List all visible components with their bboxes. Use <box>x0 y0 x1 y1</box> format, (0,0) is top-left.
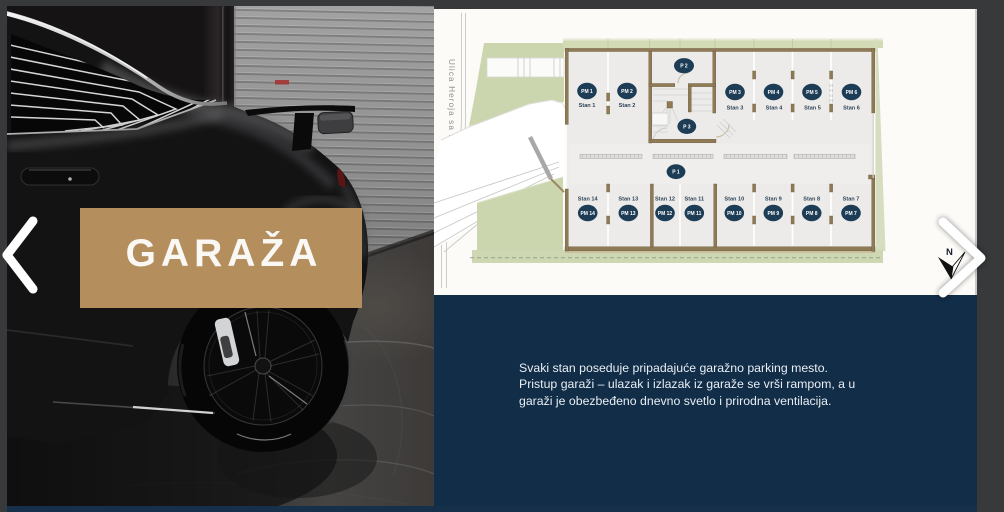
svg-text:PM 4: PM 4 <box>768 90 780 96</box>
svg-text:Stan 9: Stan 9 <box>765 197 782 203</box>
svg-text:PM 2: PM 2 <box>621 89 633 95</box>
svg-text:PM 8: PM 8 <box>806 211 818 217</box>
svg-text:Stan 5: Stan 5 <box>804 106 821 112</box>
svg-text:PM 14: PM 14 <box>580 211 595 217</box>
svg-text:Stan 8: Stan 8 <box>803 197 820 203</box>
svg-text:N: N <box>946 247 953 258</box>
svg-text:PM 5: PM 5 <box>806 90 818 96</box>
svg-text:PM 3: PM 3 <box>729 90 741 96</box>
svg-text:Stan 7: Stan 7 <box>843 197 860 203</box>
svg-text:Stan 6: Stan 6 <box>843 106 860 112</box>
svg-text:PM 13: PM 13 <box>621 211 636 217</box>
svg-text:Stan 13: Stan 13 <box>618 197 638 203</box>
svg-text:PM 1: PM 1 <box>581 89 593 95</box>
svg-text:PM 11: PM 11 <box>687 211 701 217</box>
svg-text:PM 10: PM 10 <box>727 211 742 217</box>
svg-text:Stan 3: Stan 3 <box>727 106 744 112</box>
svg-text:PM 6: PM 6 <box>846 90 858 96</box>
svg-text:Stan 11: Stan 11 <box>685 197 705 203</box>
svg-text:Stan 10: Stan 10 <box>724 197 744 203</box>
svg-text:Stan 4: Stan 4 <box>766 106 784 112</box>
svg-text:PM 9: PM 9 <box>767 211 779 217</box>
svg-text:P 3: P 3 <box>683 124 691 130</box>
svg-text:P 2: P 2 <box>680 64 688 70</box>
svg-text:PM 12: PM 12 <box>658 211 673 217</box>
svg-text:Stan 14: Stan 14 <box>578 197 599 203</box>
svg-text:PM 7: PM 7 <box>845 211 857 217</box>
svg-text:P 1: P 1 <box>672 170 680 176</box>
svg-text:Stan 12: Stan 12 <box>655 197 675 203</box>
svg-text:Stan 1: Stan 1 <box>579 103 596 109</box>
svg-text:Stan 2: Stan 2 <box>619 103 636 109</box>
